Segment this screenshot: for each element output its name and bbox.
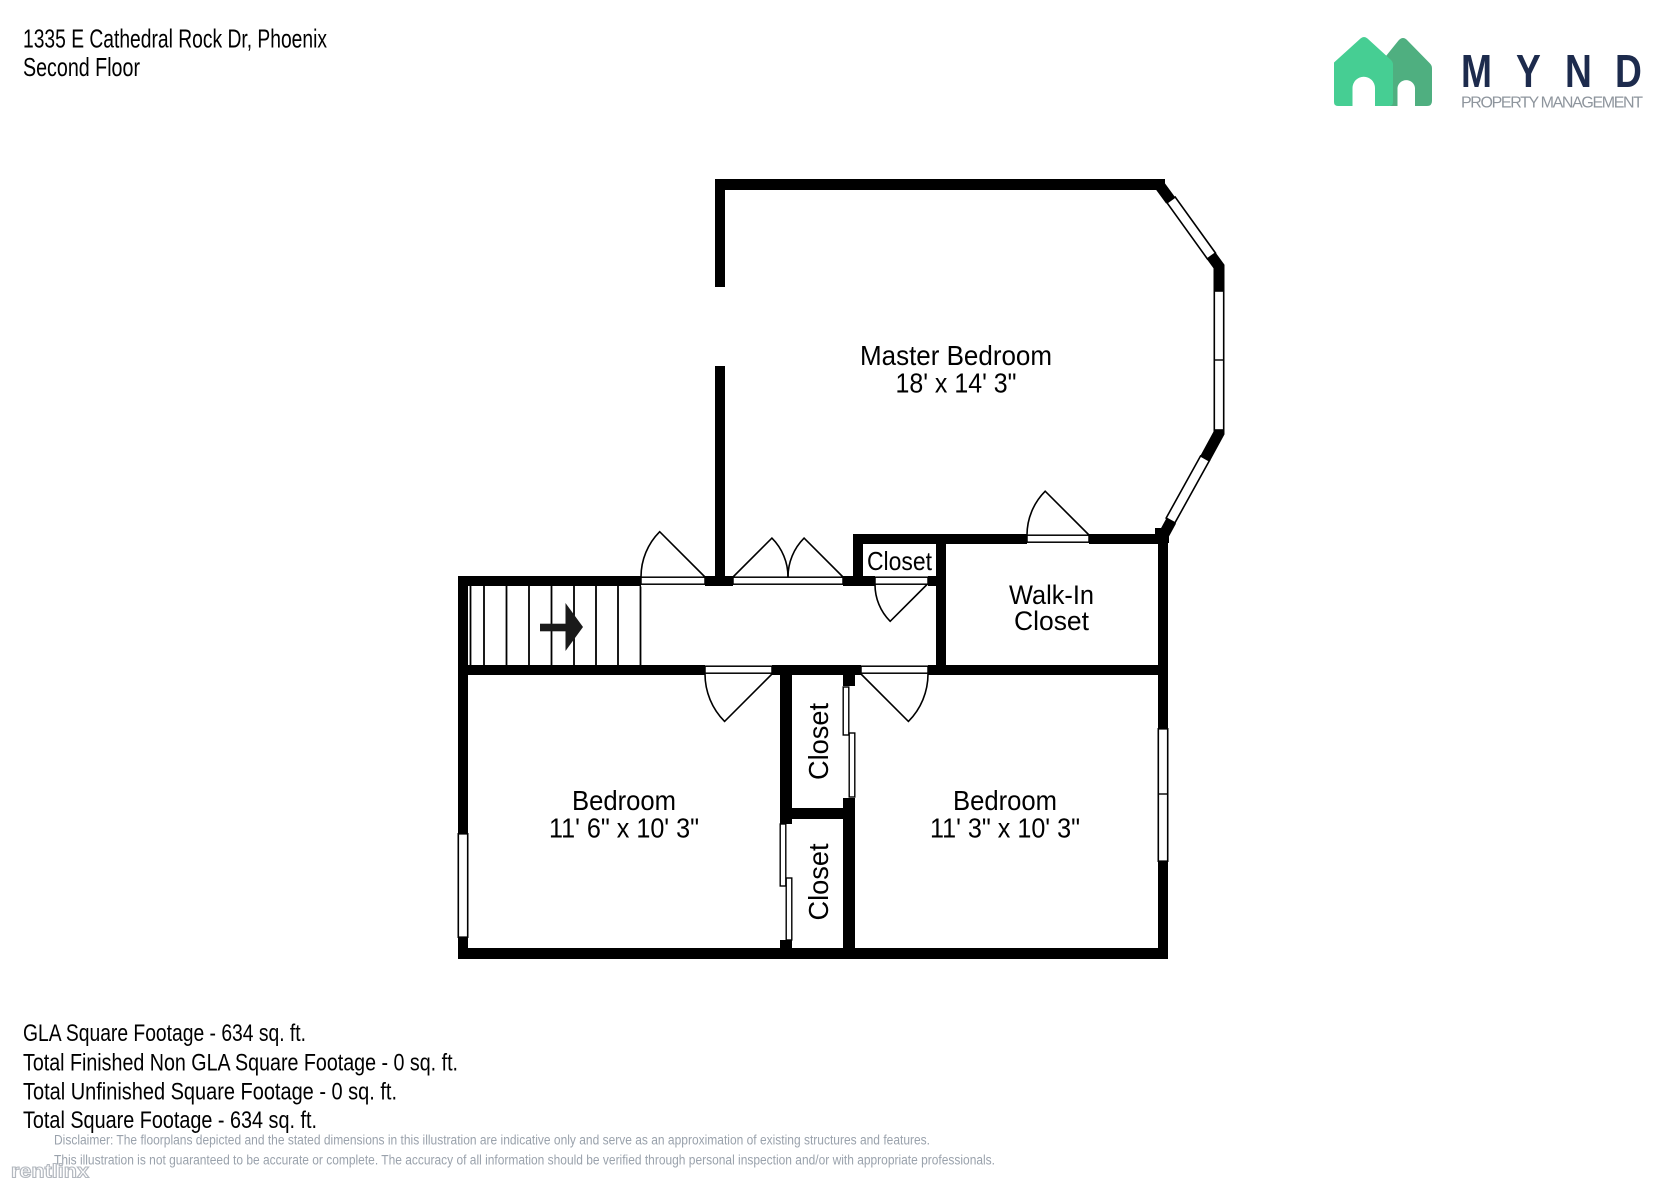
- svg-text:Bedroom: Bedroom: [572, 785, 676, 816]
- svg-text:Closet: Closet: [867, 546, 933, 576]
- svg-text:This illustration is not guara: This illustration is not guaranteed to b…: [54, 1153, 995, 1168]
- svg-text:Closet: Closet: [1014, 606, 1089, 636]
- svg-text:N: N: [1565, 45, 1592, 97]
- svg-text:Y: Y: [1516, 45, 1541, 97]
- svg-text:Total Square Footage - 634 sq.: Total Square Footage - 634 sq. ft.: [23, 1107, 317, 1134]
- svg-text:Bedroom: Bedroom: [953, 785, 1057, 816]
- svg-text:11' 3" x 10' 3": 11' 3" x 10' 3": [930, 813, 1080, 844]
- svg-text:Total Finished Non GLA Square: Total Finished Non GLA Square Footage - …: [23, 1050, 458, 1077]
- svg-text:Closet: Closet: [803, 703, 834, 780]
- svg-text:PROPERTY MANAGEMENT: PROPERTY MANAGEMENT: [1461, 95, 1643, 112]
- svg-text:D: D: [1615, 45, 1642, 97]
- svg-text:Disclaimer: The floorplans dep: Disclaimer: The floorplans depicted and …: [54, 1133, 930, 1148]
- svg-text:Second Floor: Second Floor: [23, 52, 140, 82]
- svg-text:Closet: Closet: [803, 843, 834, 920]
- svg-text:GLA Square Footage - 634 sq. f: GLA Square Footage - 634 sq. ft.: [23, 1020, 306, 1047]
- svg-text:M: M: [1461, 45, 1492, 97]
- svg-text:11' 6" x 10' 3": 11' 6" x 10' 3": [549, 813, 699, 844]
- svg-text:rentlinx: rentlinx: [11, 1161, 89, 1183]
- svg-text:Total Unfinished Square Footag: Total Unfinished Square Footage - 0 sq. …: [23, 1079, 397, 1106]
- svg-text:Master Bedroom: Master Bedroom: [860, 340, 1052, 371]
- svg-text:1335 E Cathedral Rock Dr, Phoe: 1335 E Cathedral Rock Dr, Phoenix: [23, 24, 327, 54]
- svg-text:18' x 14' 3": 18' x 14' 3": [896, 368, 1017, 399]
